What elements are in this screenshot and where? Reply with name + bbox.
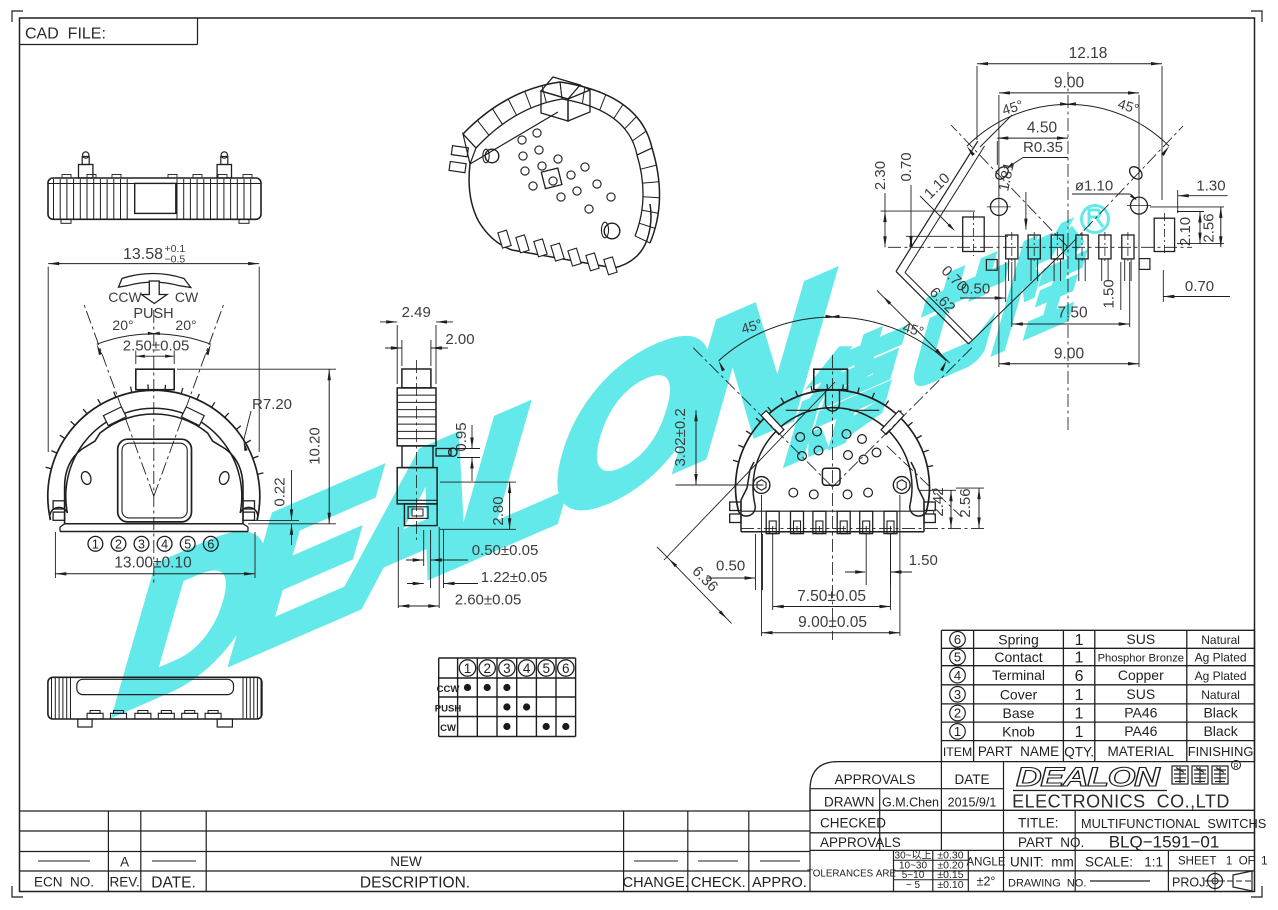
svg-text:R0.35: R0.35 bbox=[1023, 139, 1063, 156]
svg-text:Cover: Cover bbox=[1000, 686, 1038, 702]
svg-text:4: 4 bbox=[161, 537, 168, 551]
svg-text:0.50±0.05: 0.50±0.05 bbox=[472, 542, 539, 559]
svg-text:1.22±0.05: 1.22±0.05 bbox=[481, 569, 548, 586]
svg-text:~ 5: ~ 5 bbox=[906, 880, 921, 891]
svg-text:ECN NO.: ECN NO. bbox=[34, 875, 94, 890]
svg-text:APPRO.: APPRO. bbox=[752, 875, 807, 891]
svg-text:2.10: 2.10 bbox=[1177, 217, 1194, 246]
svg-text:1.30: 1.30 bbox=[1196, 178, 1225, 195]
svg-text:20°: 20° bbox=[112, 317, 133, 333]
svg-text:±0.10: ±0.10 bbox=[937, 879, 963, 891]
svg-text:Copper: Copper bbox=[1118, 667, 1164, 683]
svg-text:Phosphor Bronze: Phosphor Bronze bbox=[1098, 653, 1184, 665]
svg-text:2.00: 2.00 bbox=[445, 331, 474, 348]
svg-text:1: 1 bbox=[954, 724, 961, 739]
svg-text:UNIT: mm: UNIT: mm bbox=[1010, 855, 1074, 870]
svg-text:DATE: DATE bbox=[954, 772, 989, 787]
svg-text:0.70: 0.70 bbox=[898, 152, 915, 181]
svg-text:2.56: 2.56 bbox=[1201, 213, 1218, 242]
svg-text:3: 3 bbox=[138, 537, 145, 551]
svg-text:10.20: 10.20 bbox=[307, 427, 324, 465]
svg-text:Natural: Natural bbox=[1201, 688, 1240, 702]
svg-text:TITLE:: TITLE: bbox=[1018, 816, 1059, 831]
svg-text:1: 1 bbox=[1075, 706, 1084, 723]
svg-text:MULTIFUNCTIONAL SWITCHS: MULTIFUNCTIONAL SWITCHS bbox=[1081, 816, 1266, 831]
svg-text:TOLERANCES ARE: TOLERANCES ARE bbox=[807, 869, 897, 880]
svg-text:CW: CW bbox=[440, 723, 456, 734]
svg-text:2.50±0.05: 2.50±0.05 bbox=[123, 338, 190, 355]
svg-text:1: 1 bbox=[1075, 632, 1084, 649]
svg-text:0.50: 0.50 bbox=[961, 281, 990, 298]
svg-text:QTY.: QTY. bbox=[1064, 745, 1094, 760]
svg-text:CCW: CCW bbox=[437, 684, 460, 695]
svg-text:PUSH: PUSH bbox=[435, 704, 462, 715]
svg-text:Natural: Natural bbox=[1201, 633, 1240, 647]
svg-text:PUSH: PUSH bbox=[133, 306, 173, 322]
svg-text:DEALON: DEALON bbox=[1016, 761, 1161, 792]
svg-text:CAD FILE:: CAD FILE: bbox=[25, 26, 106, 43]
svg-text:3: 3 bbox=[503, 661, 511, 676]
svg-text:2.49: 2.49 bbox=[402, 304, 431, 321]
svg-text:NEW: NEW bbox=[390, 854, 422, 869]
svg-text:6: 6 bbox=[954, 632, 961, 647]
svg-text:Base: Base bbox=[1003, 705, 1035, 721]
svg-text:9.00: 9.00 bbox=[1054, 346, 1085, 363]
svg-text:12.18: 12.18 bbox=[1069, 45, 1108, 62]
svg-text:Terminal: Terminal bbox=[992, 667, 1045, 683]
svg-text:1: 1 bbox=[1075, 687, 1084, 704]
svg-text:13.00±0.10: 13.00±0.10 bbox=[114, 555, 192, 572]
svg-text:6: 6 bbox=[1075, 668, 1084, 685]
svg-text:PART NO.: PART NO. bbox=[1018, 835, 1084, 850]
svg-text:Ag Plated: Ag Plated bbox=[1195, 651, 1247, 665]
svg-text:4.50: 4.50 bbox=[1027, 120, 1058, 137]
svg-text:DRAWN: DRAWN bbox=[824, 795, 875, 810]
svg-text:A: A bbox=[120, 855, 129, 870]
svg-text:APPROVALS: APPROVALS bbox=[835, 772, 916, 787]
svg-text:DRAWING NO.: DRAWING NO. bbox=[1008, 878, 1086, 890]
svg-text:FINISHING: FINISHING bbox=[1188, 744, 1254, 759]
svg-text:0.70: 0.70 bbox=[1185, 278, 1214, 295]
svg-text:2.60±0.05: 2.60±0.05 bbox=[455, 592, 522, 609]
svg-text:1: 1 bbox=[1075, 724, 1084, 741]
svg-text:BLQ−1591−01: BLQ−1591−01 bbox=[1109, 833, 1220, 852]
svg-text:ø1.10: ø1.10 bbox=[1075, 178, 1113, 195]
svg-text:4: 4 bbox=[523, 661, 531, 676]
svg-text:ELECTRONICS CO.,LTD: ELECTRONICS CO.,LTD bbox=[1012, 792, 1230, 812]
svg-text:3: 3 bbox=[954, 687, 961, 702]
svg-text:9.00: 9.00 bbox=[1054, 75, 1085, 92]
svg-text:7.50: 7.50 bbox=[1057, 305, 1088, 322]
svg-text:ANGLE: ANGLE bbox=[967, 857, 1006, 869]
svg-text:CCW: CCW bbox=[108, 289, 142, 305]
svg-text:Black: Black bbox=[1203, 723, 1238, 739]
svg-text:2.30: 2.30 bbox=[872, 161, 889, 190]
svg-text:CHECK.: CHECK. bbox=[691, 875, 746, 891]
svg-text:SCALE: 1:1: SCALE: 1:1 bbox=[1085, 855, 1163, 870]
svg-text:DESCRIPTION.: DESCRIPTION. bbox=[360, 875, 470, 892]
svg-text:REV.: REV. bbox=[109, 875, 139, 890]
svg-text:2.80: 2.80 bbox=[490, 496, 507, 525]
svg-text:1.50: 1.50 bbox=[1100, 279, 1117, 308]
svg-text:PART NAME: PART NAME bbox=[978, 744, 1059, 759]
svg-text:5: 5 bbox=[184, 537, 191, 551]
svg-text:5: 5 bbox=[954, 650, 961, 665]
svg-text:2015/9/1: 2015/9/1 bbox=[948, 796, 997, 810]
svg-text:0.22: 0.22 bbox=[272, 477, 289, 506]
svg-text:5: 5 bbox=[542, 661, 550, 676]
svg-text:1: 1 bbox=[1075, 650, 1084, 667]
svg-text:3.02±0.2: 3.02±0.2 bbox=[672, 408, 689, 466]
svg-text:±2°: ±2° bbox=[977, 875, 996, 889]
svg-text:1.50: 1.50 bbox=[909, 552, 938, 569]
svg-text:2: 2 bbox=[483, 661, 491, 676]
svg-text:20°: 20° bbox=[175, 317, 196, 333]
svg-text:Black: Black bbox=[1203, 705, 1238, 721]
svg-text:ITEM: ITEM bbox=[943, 745, 972, 759]
svg-text:PA46: PA46 bbox=[1124, 723, 1157, 739]
svg-text:1: 1 bbox=[92, 537, 99, 551]
svg-text:PROJ:: PROJ: bbox=[1172, 876, 1209, 890]
svg-text:2.56: 2.56 bbox=[957, 488, 974, 517]
svg-text:Ag Plated: Ag Plated bbox=[1195, 669, 1247, 683]
svg-text:G.M.Chen: G.M.Chen bbox=[882, 796, 939, 810]
svg-text:Contact: Contact bbox=[994, 649, 1042, 665]
svg-text:SUS: SUS bbox=[1126, 631, 1155, 647]
svg-text:MATERIAL: MATERIAL bbox=[1108, 744, 1175, 759]
svg-text:DATE.: DATE. bbox=[151, 875, 196, 892]
svg-text:0.95: 0.95 bbox=[453, 422, 470, 451]
svg-text:4: 4 bbox=[954, 668, 961, 683]
svg-text:SUS: SUS bbox=[1126, 686, 1155, 702]
svg-text:2.42: 2.42 bbox=[930, 487, 947, 516]
svg-text:9.00±0.05: 9.00±0.05 bbox=[798, 614, 867, 631]
svg-text:CHANGE.: CHANGE. bbox=[623, 875, 689, 891]
svg-text:R7.20: R7.20 bbox=[252, 396, 292, 413]
svg-text:7.50±0.05: 7.50±0.05 bbox=[797, 588, 866, 605]
svg-text:2: 2 bbox=[954, 706, 961, 721]
svg-text:2: 2 bbox=[115, 537, 122, 551]
svg-text:Knob: Knob bbox=[1002, 723, 1035, 739]
svg-text:0.50: 0.50 bbox=[716, 557, 745, 574]
svg-text:Spring: Spring bbox=[998, 631, 1038, 647]
svg-text:CW: CW bbox=[175, 289, 199, 305]
svg-text:13.58: 13.58 bbox=[123, 246, 163, 263]
svg-text:6: 6 bbox=[207, 537, 214, 551]
svg-text:PA46: PA46 bbox=[1124, 705, 1157, 721]
svg-text:APPROVALS: APPROVALS bbox=[820, 835, 901, 850]
svg-text:6: 6 bbox=[562, 661, 570, 676]
svg-text:R: R bbox=[1233, 763, 1238, 770]
svg-text:SHEET 1 OF 1: SHEET 1 OF 1 bbox=[1178, 856, 1267, 868]
svg-text:CHECKED: CHECKED bbox=[820, 816, 886, 831]
svg-text:1: 1 bbox=[464, 661, 472, 676]
